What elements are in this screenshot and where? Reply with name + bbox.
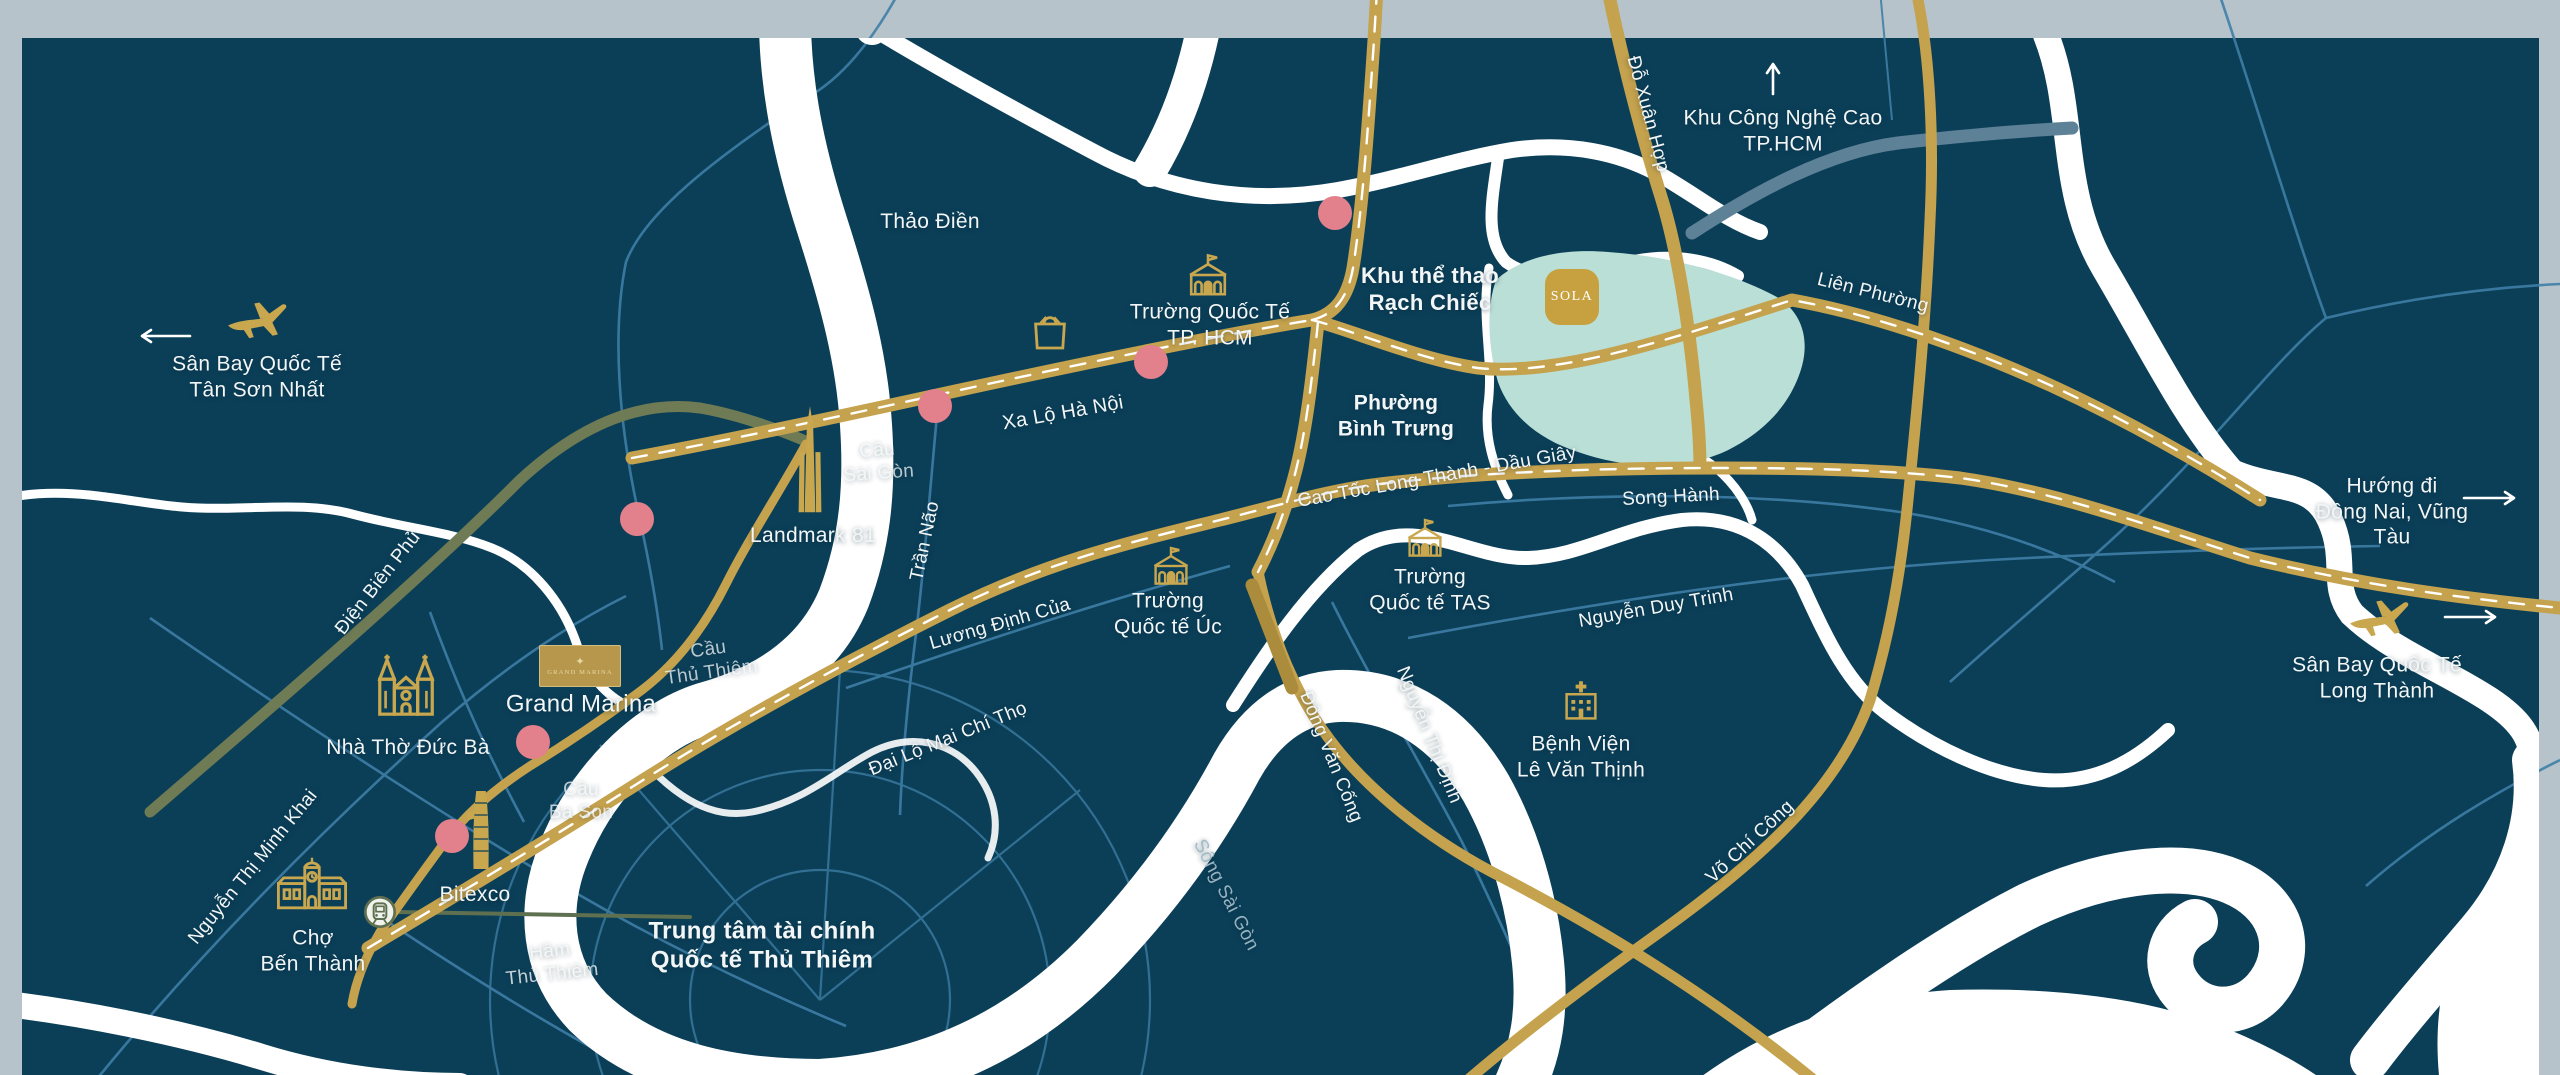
landmark-81-label: Landmark 81 <box>750 523 876 549</box>
map-overlay: SOLA ✦ GRAND MARINA Sân Bay Quốc Tế Tân … <box>0 0 2560 1075</box>
location-marker[interactable] <box>435 819 469 853</box>
cau-ba-son-label: Cầu Ba Son <box>549 778 613 824</box>
tan-son-nhat-airport-label: Sân Bay Quốc Tế Tân Sơn Nhất <box>172 351 342 402</box>
sola-project-badge[interactable]: SOLA <box>1545 269 1599 325</box>
sola-badge-label: SOLA <box>1551 289 1594 305</box>
truong-quoc-te-tas-label: Trường Quốc tế TAS <box>1369 564 1491 615</box>
church-icon-duc-ba <box>368 650 444 725</box>
truong-quoc-te-tphcm-label: Trường Quốc Tế TP. HCM <box>1130 299 1290 350</box>
thao-dien-label: Thảo Điền <box>880 209 980 235</box>
location-marker[interactable] <box>620 502 654 536</box>
tower-icon-bitexco <box>466 784 496 881</box>
grand-marina-sign-label: GRAND MARINA <box>547 669 613 676</box>
tran-nao-label: Trần Não <box>905 499 944 583</box>
nguyen-duy-trinh-label: Nguyễn Duy Trinh <box>1577 583 1736 633</box>
vo-chi-cong-label: Võ Chí Công <box>1701 795 1799 888</box>
metro-icon-ben-thanh <box>360 893 400 938</box>
phuong-binh-trung-label: Phường Bình Trưng <box>1338 390 1454 441</box>
school-icon-tas <box>1401 516 1449 565</box>
do-xuan-hop-label: Đỗ Xuân Hợp <box>1621 53 1674 174</box>
school-icon-tphcm <box>1182 251 1234 304</box>
location-map: SOLA ✦ GRAND MARINA Sân Bay Quốc Tế Tân … <box>0 0 2560 1075</box>
dai-lo-mai-chi-tho-label: Đại Lộ Mai Chí Thọ <box>865 697 1030 782</box>
trung-tam-tai-chinh-label: Trung tâm tài chính Quốc tế Thủ Thiêm <box>648 917 875 976</box>
location-marker[interactable] <box>1134 345 1168 379</box>
grand-marina-sign: ✦ GRAND MARINA <box>539 645 621 687</box>
nha-tho-duc-ba-label: Nhà Thờ Đức Bà <box>326 735 490 761</box>
bitexco-label: Bitexco <box>440 882 511 908</box>
khu-cong-nghe-cao-label: Khu Công Nghệ Cao TP.HCM <box>1684 105 1883 156</box>
shopping-bag-icon <box>1026 306 1074 359</box>
nguyen-thi-dinh-label: Nguyễn Thị Định <box>1391 663 1467 807</box>
luong-dinh-cua-label: Lương Định Của <box>927 593 1073 655</box>
san-bay-long-thanh-label: Sân Bay Quốc Tế Long Thành <box>2292 652 2462 703</box>
cao-toc-long-thanh-label: Cao Tốc Long Thành - Dầu Giây <box>1296 441 1578 513</box>
location-marker[interactable] <box>516 725 550 759</box>
xa-lo-ha-noi-label: Xa Lộ Hà Nội <box>1001 390 1126 435</box>
benh-vien-le-van-thinh-label: Bệnh Viện Lê Văn Thịnh <box>1517 731 1645 782</box>
compass-emblem-icon: ✦ <box>575 657 584 668</box>
location-marker[interactable] <box>918 389 952 423</box>
hospital-icon <box>1558 677 1604 728</box>
truong-quoc-te-uc-label: Trường Quốc tế Úc <box>1114 588 1222 639</box>
plane-icon-tan-son-nhat <box>215 281 299 352</box>
location-marker[interactable] <box>1318 196 1352 230</box>
market-icon-ben-thanh <box>270 851 354 918</box>
tower-icon-landmark81 <box>791 401 829 524</box>
cau-sai-gon-label: Cầu Sài Gòn <box>841 436 915 487</box>
plane-icon-long-thanh <box>2337 579 2421 650</box>
song-sai-gon-label: Sông Sài Gòn <box>1188 835 1264 954</box>
dong-van-cong-label: Đồng Văn Cống <box>1294 688 1368 826</box>
huong-di-dong-nai-label: Hướng đi Đồng Nai, Vũng Tàu <box>2308 474 2476 551</box>
cho-ben-thanh-label: Chợ Bến Thành <box>260 925 365 976</box>
grand-marina-label: Grand Marina <box>506 689 656 718</box>
school-icon-uc <box>1147 544 1195 593</box>
khu-the-thao-rach-chiec-label: Khu thể thao Rạch Chiếc <box>1361 263 1499 317</box>
lien-phuong-label: Liên Phường <box>1815 268 1931 318</box>
dien-bien-phu-label: Điện Biên Phủ <box>330 526 425 639</box>
song-hanh-label: Song Hành <box>1622 483 1721 511</box>
ham-thu-thiem-label: Hầm Thủ Thiêm <box>502 935 600 991</box>
cau-thu-thiem-label: Cầu Thủ Thiêm <box>661 632 760 691</box>
